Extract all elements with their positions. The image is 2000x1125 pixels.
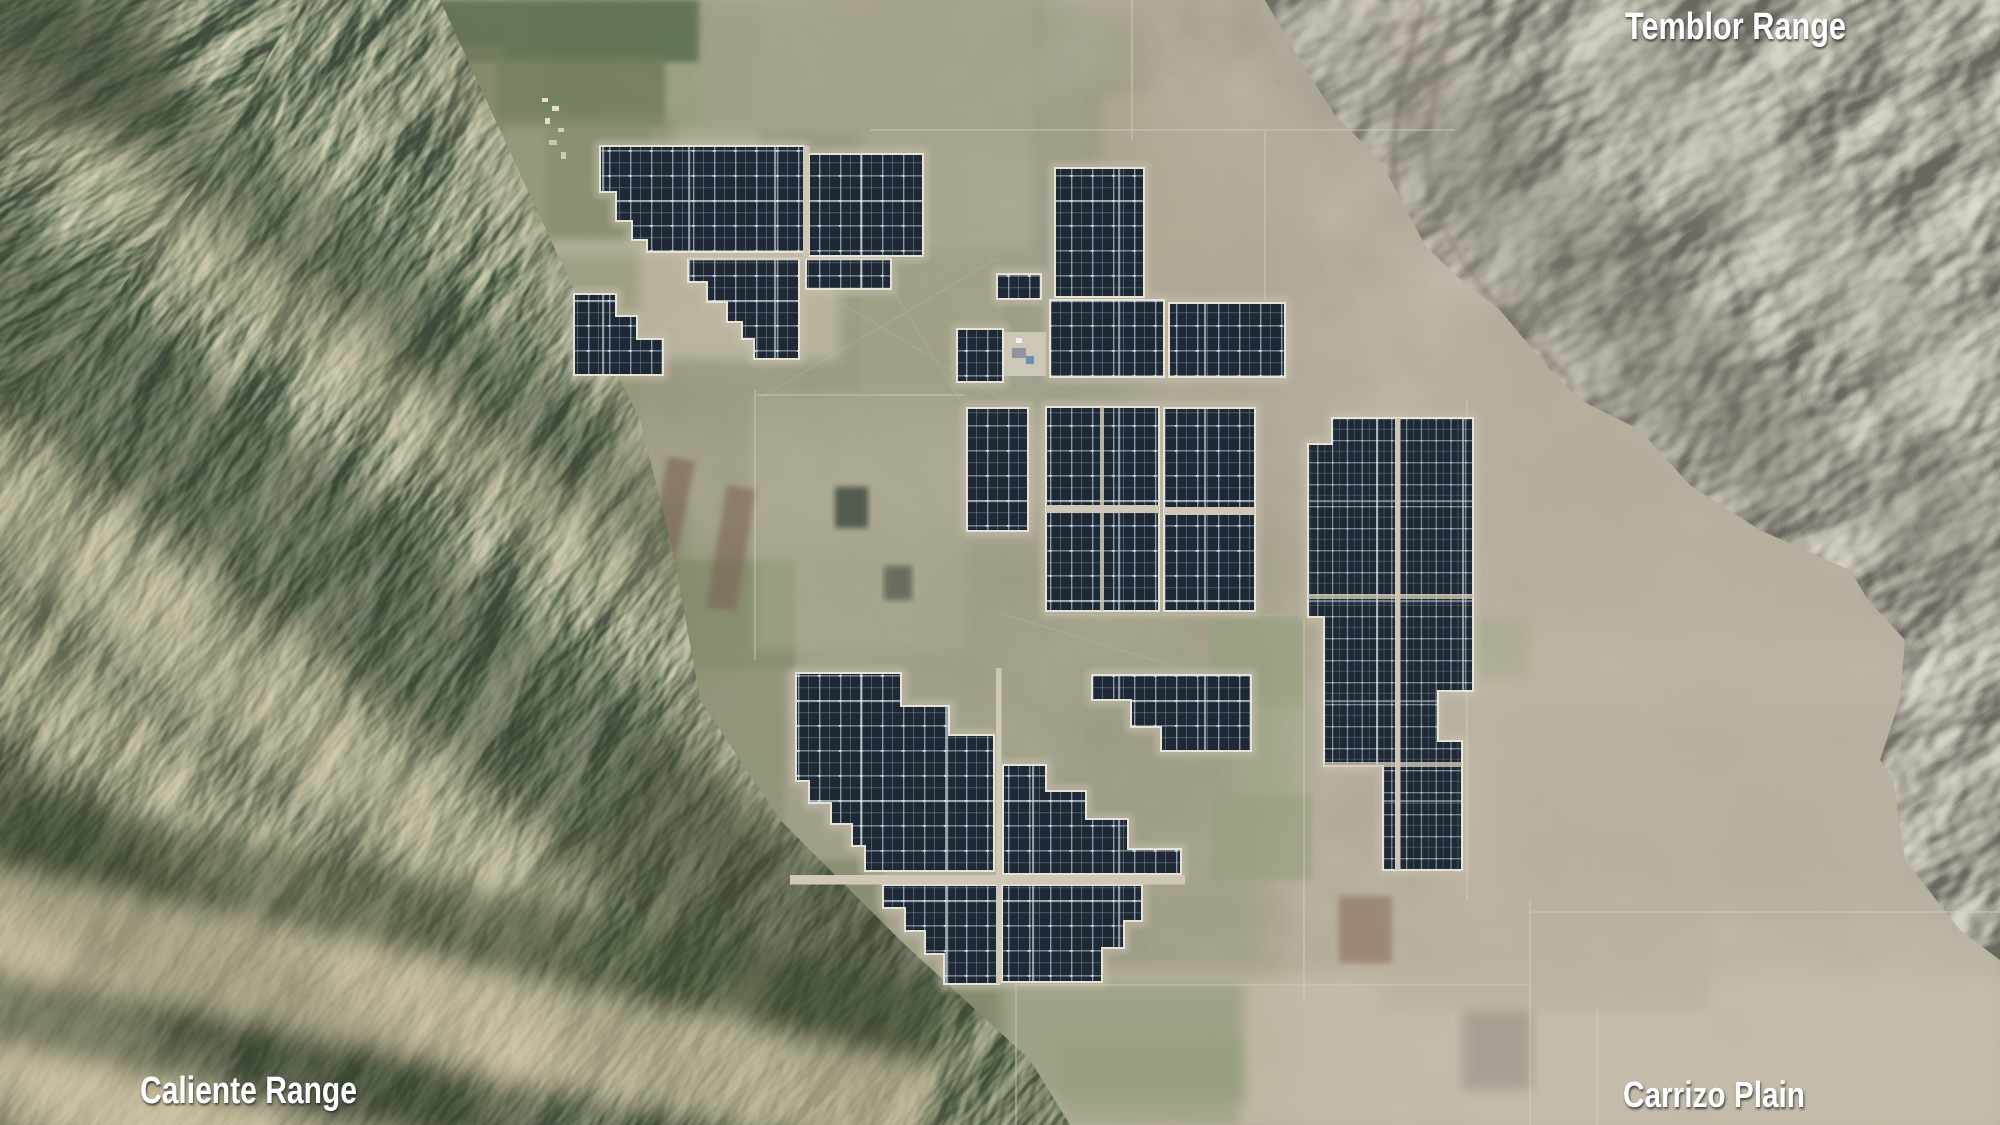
svg-text:Carrizo Plain: Carrizo Plain: [1623, 1074, 1805, 1115]
svg-text:Caliente Range: Caliente Range: [140, 1070, 357, 1112]
svg-text:Temblor Range: Temblor Range: [1625, 6, 1846, 48]
